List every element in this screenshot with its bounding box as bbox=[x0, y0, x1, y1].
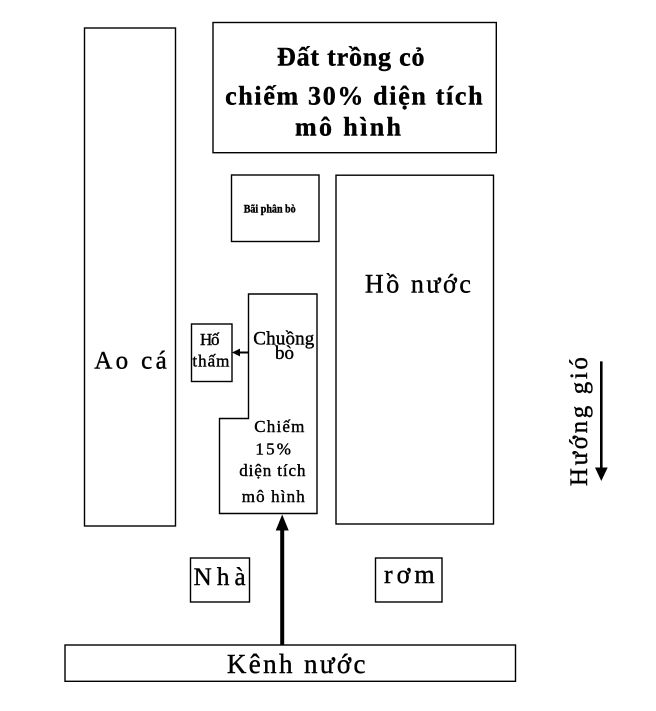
svg-text:mô hình: mô hình bbox=[242, 487, 306, 506]
svg-text:bò: bò bbox=[275, 343, 294, 364]
svg-text:15%: 15% bbox=[255, 440, 291, 459]
svg-text:Kênh nước: Kênh nước bbox=[227, 649, 366, 679]
svg-text:rơm: rơm bbox=[384, 560, 435, 589]
svg-text:Hồ nước: Hồ nước bbox=[365, 270, 471, 299]
svg-text:thấm: thấm bbox=[192, 351, 229, 370]
svg-text:Hướng gió: Hướng gió bbox=[566, 357, 593, 486]
svg-text:chiếm 30% diện tích: chiếm 30% diện tích bbox=[225, 82, 483, 111]
svg-text:Bãi phân bò: Bãi phân bò bbox=[244, 201, 296, 215]
svg-text:Chiếm: Chiếm bbox=[254, 417, 304, 436]
svg-text:mô hình: mô hình bbox=[295, 113, 402, 142]
svg-text:diện tích: diện tích bbox=[239, 461, 306, 480]
svg-text:Nhà: Nhà bbox=[194, 564, 246, 591]
svg-text:Đất trồng cỏ: Đất trồng cỏ bbox=[277, 42, 425, 71]
svg-text:Ao cá: Ao cá bbox=[94, 347, 167, 374]
svg-text:Hố: Hố bbox=[200, 330, 220, 349]
